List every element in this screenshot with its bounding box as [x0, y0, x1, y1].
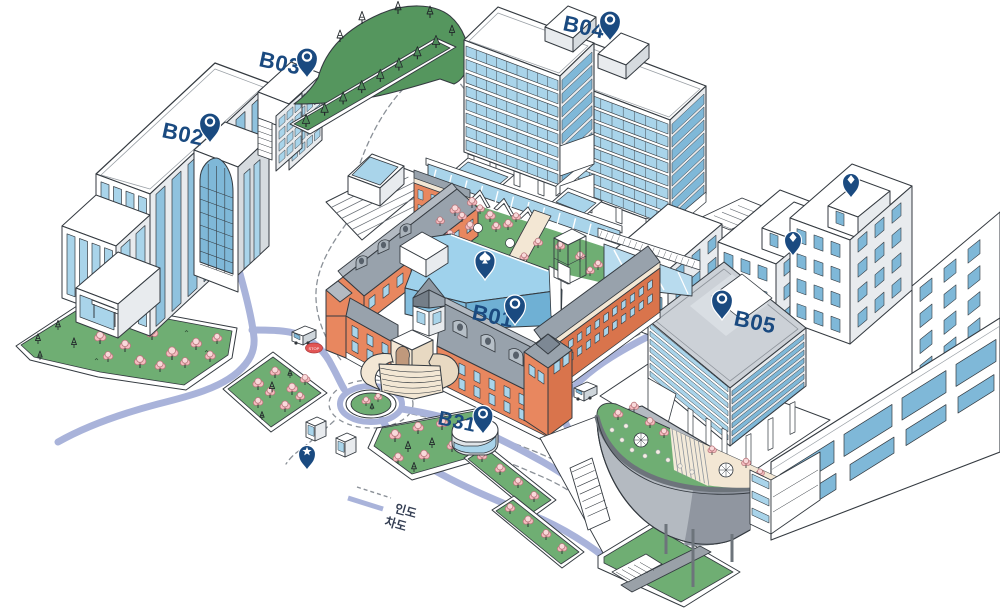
svg-text:STOP: STOP: [309, 346, 320, 351]
